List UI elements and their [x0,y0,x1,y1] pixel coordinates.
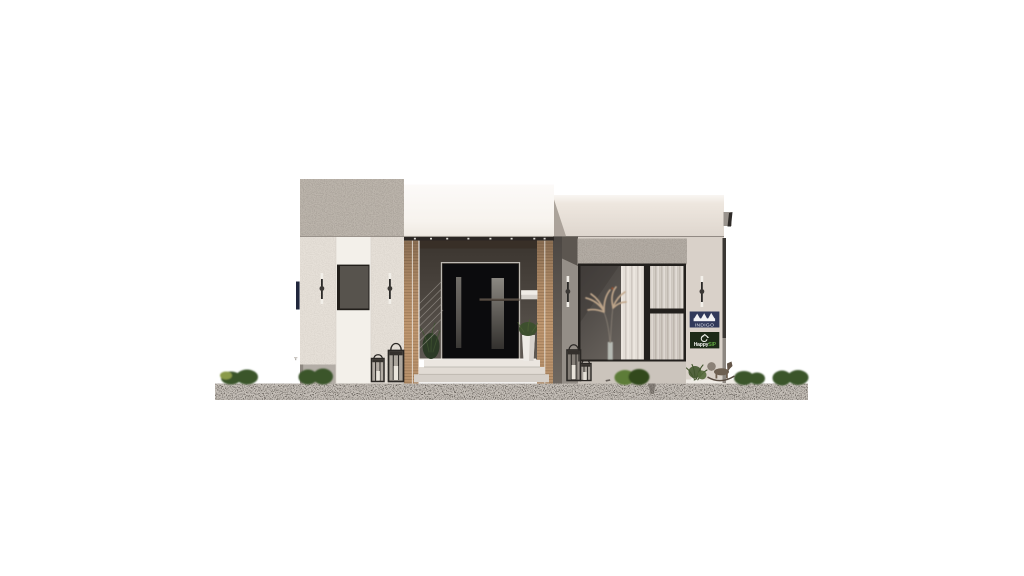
svg-text:INDIGO: INDIGO [695,323,715,329]
svg-text:HappySIP: HappySIP [694,342,717,348]
